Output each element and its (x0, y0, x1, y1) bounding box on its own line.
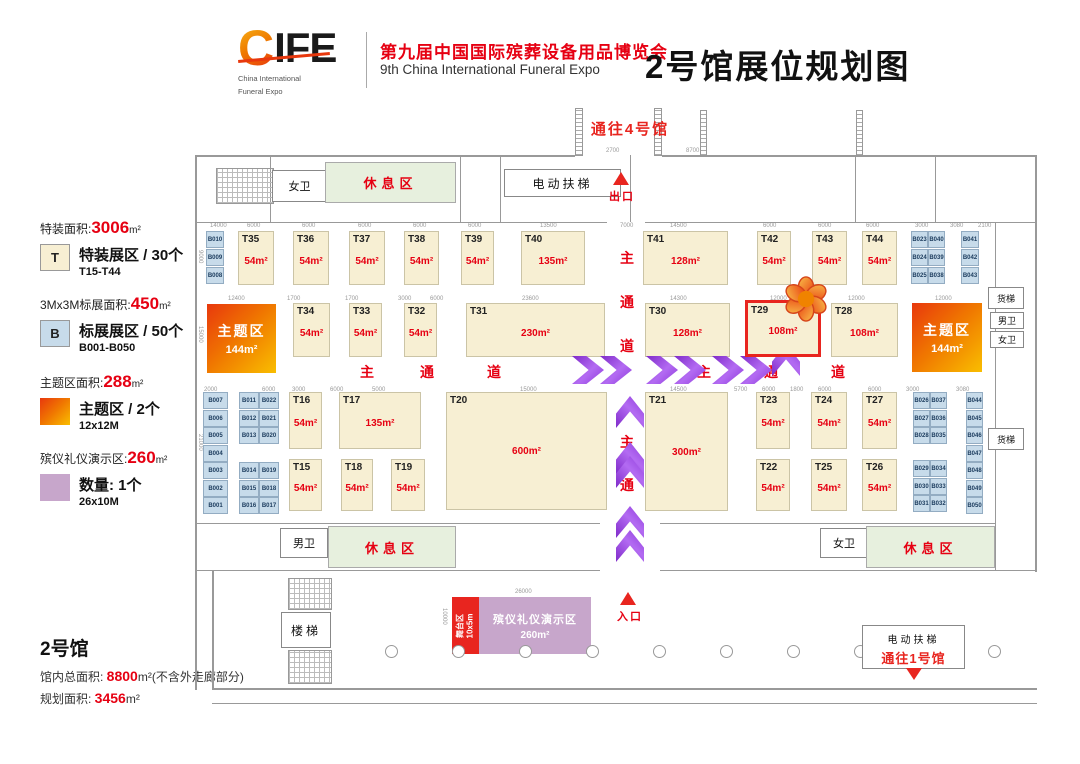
booth-area: 54m² (758, 256, 790, 267)
booth-T25: T2554m² (811, 459, 847, 511)
booth-id: T24 (815, 395, 832, 406)
booth-B018: B018 (259, 480, 279, 497)
demo-area-size: 260m² (521, 630, 550, 641)
booth-area: 54m² (405, 328, 436, 339)
theme-zone-area: 144m² (226, 344, 258, 356)
booth-id: T20 (450, 395, 467, 406)
structural-column (385, 645, 398, 658)
to-hall4-label: 通往4号馆 (566, 118, 694, 139)
booth-B028: B028 (913, 427, 930, 444)
booth-T24: T2454m² (811, 392, 847, 449)
escalator-to-hall1: 电动扶梯 通往1号馆 (862, 625, 965, 669)
aisle-label-char: 道 (620, 336, 634, 356)
booth-B021: B021 (259, 410, 279, 427)
booth-B022: B022 (259, 392, 279, 409)
flow-arrow-icon (616, 396, 644, 428)
booth-T34: T3454m² (293, 303, 330, 357)
aisle-label-char: 通 (420, 362, 434, 382)
booth-area: 54m² (863, 256, 896, 267)
structural-column (720, 645, 733, 658)
wall (935, 155, 936, 222)
wall (662, 155, 1037, 157)
booth-area: 54m² (405, 256, 438, 267)
floor-plan: 通往4号馆 出口 入口 舞台区 10x5m 殡仪礼仪演示区 260m² 电动扶梯… (0, 0, 1080, 764)
dimension-label: 6000 (358, 223, 371, 229)
aisle-label-char: 主 (360, 362, 374, 382)
booth-B011: B011 (239, 392, 259, 409)
theme-zone-area: 144m² (931, 343, 963, 355)
booth-id: T34 (297, 306, 314, 317)
booth-B047: B047 (966, 445, 983, 462)
booth-area: 128m² (646, 328, 729, 339)
booth-B024: B024 (911, 249, 928, 266)
flow-arrow-icon (712, 356, 744, 384)
dimension-label: 6000 (866, 223, 879, 229)
wall (1035, 155, 1037, 572)
booth-area: 54m² (239, 256, 273, 267)
room-rest-area-bottom-right: 休息区 (866, 526, 995, 568)
stage-name: 舞台区 (456, 612, 466, 639)
wall (212, 688, 1037, 690)
dimension-label: 14500 (670, 223, 687, 229)
theme-zone-2: 主题区144m² (912, 303, 982, 372)
dimension-label: 6000 (468, 223, 481, 229)
dimension-label: 1700 (345, 296, 358, 302)
booth-T30: T30128m² (645, 303, 730, 357)
theme-zone-1: 主题区144m² (207, 304, 276, 373)
booth-T19: T1954m² (391, 459, 425, 511)
booth-area: 54m² (392, 483, 424, 494)
booth-B044: B044 (966, 392, 983, 409)
booth-id: T44 (866, 234, 883, 245)
booth-id: T43 (816, 234, 833, 245)
aisle-label-char: 道 (487, 362, 501, 382)
structural-column (988, 645, 1001, 658)
booth-id: T15 (293, 462, 310, 473)
booth-B039: B039 (928, 249, 945, 266)
wall (660, 523, 996, 524)
dimension-label: 13500 (540, 223, 557, 229)
booth-id: T38 (408, 234, 425, 245)
dimension-label: 6000 (302, 223, 315, 229)
booth-area: 54m² (757, 483, 789, 494)
exit-arrow-icon (613, 172, 629, 185)
entrance-label: 入口 (606, 608, 654, 624)
booth-area: 54m² (757, 418, 789, 429)
to-hall1-label: 通往1号馆 (863, 648, 964, 667)
booth-id: T39 (465, 234, 482, 245)
booth-B043: B043 (961, 267, 979, 284)
structural-column (653, 645, 666, 658)
booth-B002: B002 (203, 480, 228, 497)
dimension-label: 2100 (978, 223, 991, 229)
booth-area: 54m² (813, 256, 846, 267)
down-arrow-icon (906, 668, 922, 680)
booth-B015: B015 (239, 480, 259, 497)
booth-area: 600m² (447, 446, 606, 457)
stair-hatch (288, 650, 332, 684)
booth-B032: B032 (930, 495, 947, 512)
booth-B050: B050 (966, 497, 983, 514)
booth-area: 54m² (350, 328, 381, 339)
exit-label: 出口 (600, 188, 644, 204)
structural-column (586, 645, 599, 658)
room-stairs: 楼梯 (281, 612, 331, 648)
booth-B008: B008 (206, 267, 224, 284)
booth-B033: B033 (930, 478, 947, 495)
structural-column (452, 645, 465, 658)
room-freight-elevator-right: 货梯 (988, 428, 1024, 450)
booth-B034: B034 (930, 460, 947, 477)
room-wc-women-right: 女卫 (990, 331, 1024, 348)
booth-id: T33 (353, 306, 370, 317)
structural-column (787, 645, 800, 658)
wall (855, 155, 856, 222)
booth-area: 135m² (522, 256, 584, 267)
aisle-label-char: 道 (831, 362, 845, 382)
booth-area: 54m² (812, 418, 846, 429)
escalator-label: 电动扶梯 (863, 631, 964, 646)
wall (995, 222, 996, 570)
booth-id: T17 (343, 395, 360, 406)
booth-B045: B045 (966, 410, 983, 427)
wall (195, 523, 600, 524)
flow-arrow-icon (600, 356, 632, 384)
booth-area: 128m² (644, 256, 727, 267)
booth-id: T18 (345, 462, 362, 473)
booth-B017: B017 (259, 497, 279, 514)
booth-id: T23 (760, 395, 777, 406)
stage-size: 10x5m (466, 612, 476, 639)
booth-B009: B009 (206, 249, 224, 266)
dimension-label: 2700 (606, 148, 619, 154)
flow-arrow-icon (646, 356, 678, 384)
booth-id: T22 (760, 462, 777, 473)
booth-area: 54m² (294, 256, 328, 267)
booth-id: T21 (649, 395, 666, 406)
dimension-label: 5700 (734, 387, 747, 393)
stair-hatch (288, 578, 332, 610)
booth-T36: T3654m² (293, 231, 329, 285)
booth-id: T27 (866, 395, 883, 406)
booth-T40: T40135m² (521, 231, 585, 285)
booth-id: T32 (408, 306, 425, 317)
booth-B003: B003 (203, 462, 228, 479)
booth-T44: T4454m² (862, 231, 897, 285)
booth-B012: B012 (239, 410, 259, 427)
wall (212, 570, 214, 690)
booth-id: T28 (835, 306, 852, 317)
booth-B026: B026 (913, 392, 930, 409)
room-rest-area-bottom-left: 休息区 (328, 526, 456, 568)
booth-area: 54m² (863, 418, 896, 429)
dimension-label: 6000 (413, 223, 426, 229)
booth-id: T25 (815, 462, 832, 473)
booth-area: 54m² (350, 256, 384, 267)
booth-B046: B046 (966, 427, 983, 444)
booth-area: 54m² (294, 328, 329, 339)
dimension-label: 7000 (620, 223, 633, 229)
dimension-label: 23600 (522, 296, 539, 302)
dimension-label: 6000 (430, 296, 443, 302)
dimension-label: 12000 (848, 296, 865, 302)
ceremony-demo-area: 殡仪礼仪演示区 260m² (479, 597, 591, 654)
booth-B040: B040 (928, 231, 945, 248)
booth-area: 54m² (812, 483, 846, 494)
wall (195, 155, 197, 690)
booth-B029: B029 (913, 460, 930, 477)
booth-B001: B001 (203, 497, 228, 514)
booth-id: T29 (751, 305, 768, 316)
dimension-label: 12000 (935, 296, 952, 302)
room-wc-men-bottom: 男卫 (280, 528, 328, 558)
wall (500, 155, 501, 222)
booth-B006: B006 (203, 410, 228, 427)
dimension-label: 14000 (210, 223, 227, 229)
booth-id: T40 (525, 234, 542, 245)
page: C IFE China International Funeral Expo 第… (0, 0, 1080, 764)
wall (212, 703, 1037, 704)
booth-T37: T3754m² (349, 231, 385, 285)
booth-B004: B004 (203, 445, 228, 462)
booth-B048: B048 (966, 462, 983, 479)
booth-B049: B049 (966, 480, 983, 497)
dimension-label: 12400 (228, 296, 245, 302)
booth-id: T26 (866, 462, 883, 473)
booth-T20: T20600m² (446, 392, 607, 510)
booth-B019: B019 (259, 462, 279, 479)
dimension-label: 10000 (441, 608, 447, 625)
dimension-label: 14300 (670, 296, 687, 302)
booth-B036: B036 (930, 410, 947, 427)
booth-T38: T3854m² (404, 231, 439, 285)
corridor-wall (856, 110, 863, 156)
booth-T23: T2354m² (756, 392, 790, 449)
entrance-arrow-icon (620, 592, 636, 605)
booth-T32: T3254m² (404, 303, 437, 357)
booth-id: T41 (647, 234, 664, 245)
flow-arrow-icon (572, 356, 604, 384)
booth-B023: B023 (911, 231, 928, 248)
room-rest-area-top: 休息区 (325, 162, 456, 203)
booth-id: T19 (395, 462, 412, 473)
room-wc-women-bottom: 女卫 (820, 528, 868, 558)
booth-B010: B010 (206, 231, 224, 248)
stage-label: 舞台区 10x5m (456, 612, 476, 639)
theme-zone-name: 主题区 (218, 321, 266, 341)
wall (460, 155, 461, 222)
booth-T17: T17135m² (339, 392, 421, 449)
dimension-label: 1800 (790, 387, 803, 393)
booth-id: T36 (297, 234, 314, 245)
dimension-label: 6000 (247, 223, 260, 229)
aisle-label-char: 通 (620, 292, 634, 312)
booth-B038: B038 (928, 267, 945, 284)
booth-area: 54m² (290, 483, 321, 494)
booth-area: 54m² (342, 483, 372, 494)
booth-B005: B005 (203, 427, 228, 444)
booth-B016: B016 (239, 497, 259, 514)
room-wc-men-right: 男卫 (990, 312, 1024, 329)
dimension-label: 8700 (686, 148, 699, 154)
booth-T33: T3354m² (349, 303, 382, 357)
stair-hatch (216, 168, 274, 204)
booth-T22: T2254m² (756, 459, 790, 511)
booth-B041: B041 (961, 231, 979, 248)
demo-area-name: 殡仪礼仪演示区 (493, 611, 577, 627)
structural-column (519, 645, 532, 658)
wall (195, 570, 600, 571)
booth-B007: B007 (203, 392, 228, 409)
theme-zone-name: 主题区 (923, 320, 971, 340)
dimension-label: 6000 (763, 223, 776, 229)
flow-arrow-icon (616, 530, 644, 562)
booth-T41: T41128m² (643, 231, 728, 285)
corridor-wall (700, 110, 707, 156)
wall (660, 570, 1037, 571)
booth-area: 300m² (646, 447, 727, 458)
booth-T21: T21300m² (645, 392, 728, 511)
booth-id: T37 (353, 234, 370, 245)
booth-B020: B020 (259, 427, 279, 444)
room-freight-elevator-top-right: 货梯 (988, 287, 1024, 309)
booth-id: T16 (293, 395, 310, 406)
booth-area: 108m² (748, 326, 818, 337)
dimension-label: 15000 (197, 326, 203, 343)
booth-B035: B035 (930, 427, 947, 444)
booth-area: 108m² (832, 328, 897, 339)
booth-T26: T2654m² (862, 459, 897, 511)
highlight-star-icon (783, 276, 829, 322)
dimension-label: 9000 (197, 250, 203, 263)
booth-B042: B042 (961, 249, 979, 266)
booth-area: 135m² (340, 418, 420, 429)
booth-B014: B014 (239, 462, 259, 479)
booth-area: 54m² (863, 483, 896, 494)
booth-T18: T1854m² (341, 459, 373, 511)
dimension-label: 1700 (287, 296, 300, 302)
booth-T27: T2754m² (862, 392, 897, 449)
booth-T16: T1654m² (289, 392, 322, 449)
booth-T31: T31230m² (466, 303, 605, 357)
booth-B025: B025 (911, 267, 928, 284)
booth-T28: T28108m² (831, 303, 898, 357)
dimension-label: 6000 (818, 223, 831, 229)
booth-area: 230m² (467, 328, 604, 339)
booth-B030: B030 (913, 478, 930, 495)
dimension-label: 3000 (915, 223, 928, 229)
booth-area: 54m² (462, 256, 493, 267)
dimension-label: 3000 (398, 296, 411, 302)
booth-area: 54m² (290, 418, 321, 429)
booth-id: T42 (761, 234, 778, 245)
booth-id: T35 (242, 234, 259, 245)
booth-T39: T3954m² (461, 231, 494, 285)
dimension-label: 26000 (515, 589, 532, 595)
dimension-label: 3080 (950, 223, 963, 229)
room-wc-women-top: 女卫 (272, 170, 327, 202)
booth-B037: B037 (930, 392, 947, 409)
booth-T15: T1554m² (289, 459, 322, 511)
booth-B031: B031 (913, 495, 930, 512)
booth-B013: B013 (239, 427, 259, 444)
booth-T35: T3554m² (238, 231, 274, 285)
aisle-label-char: 主 (620, 248, 634, 268)
booth-id: T31 (470, 306, 487, 317)
booth-id: T30 (649, 306, 666, 317)
booth-B027: B027 (913, 410, 930, 427)
wall (195, 155, 575, 157)
